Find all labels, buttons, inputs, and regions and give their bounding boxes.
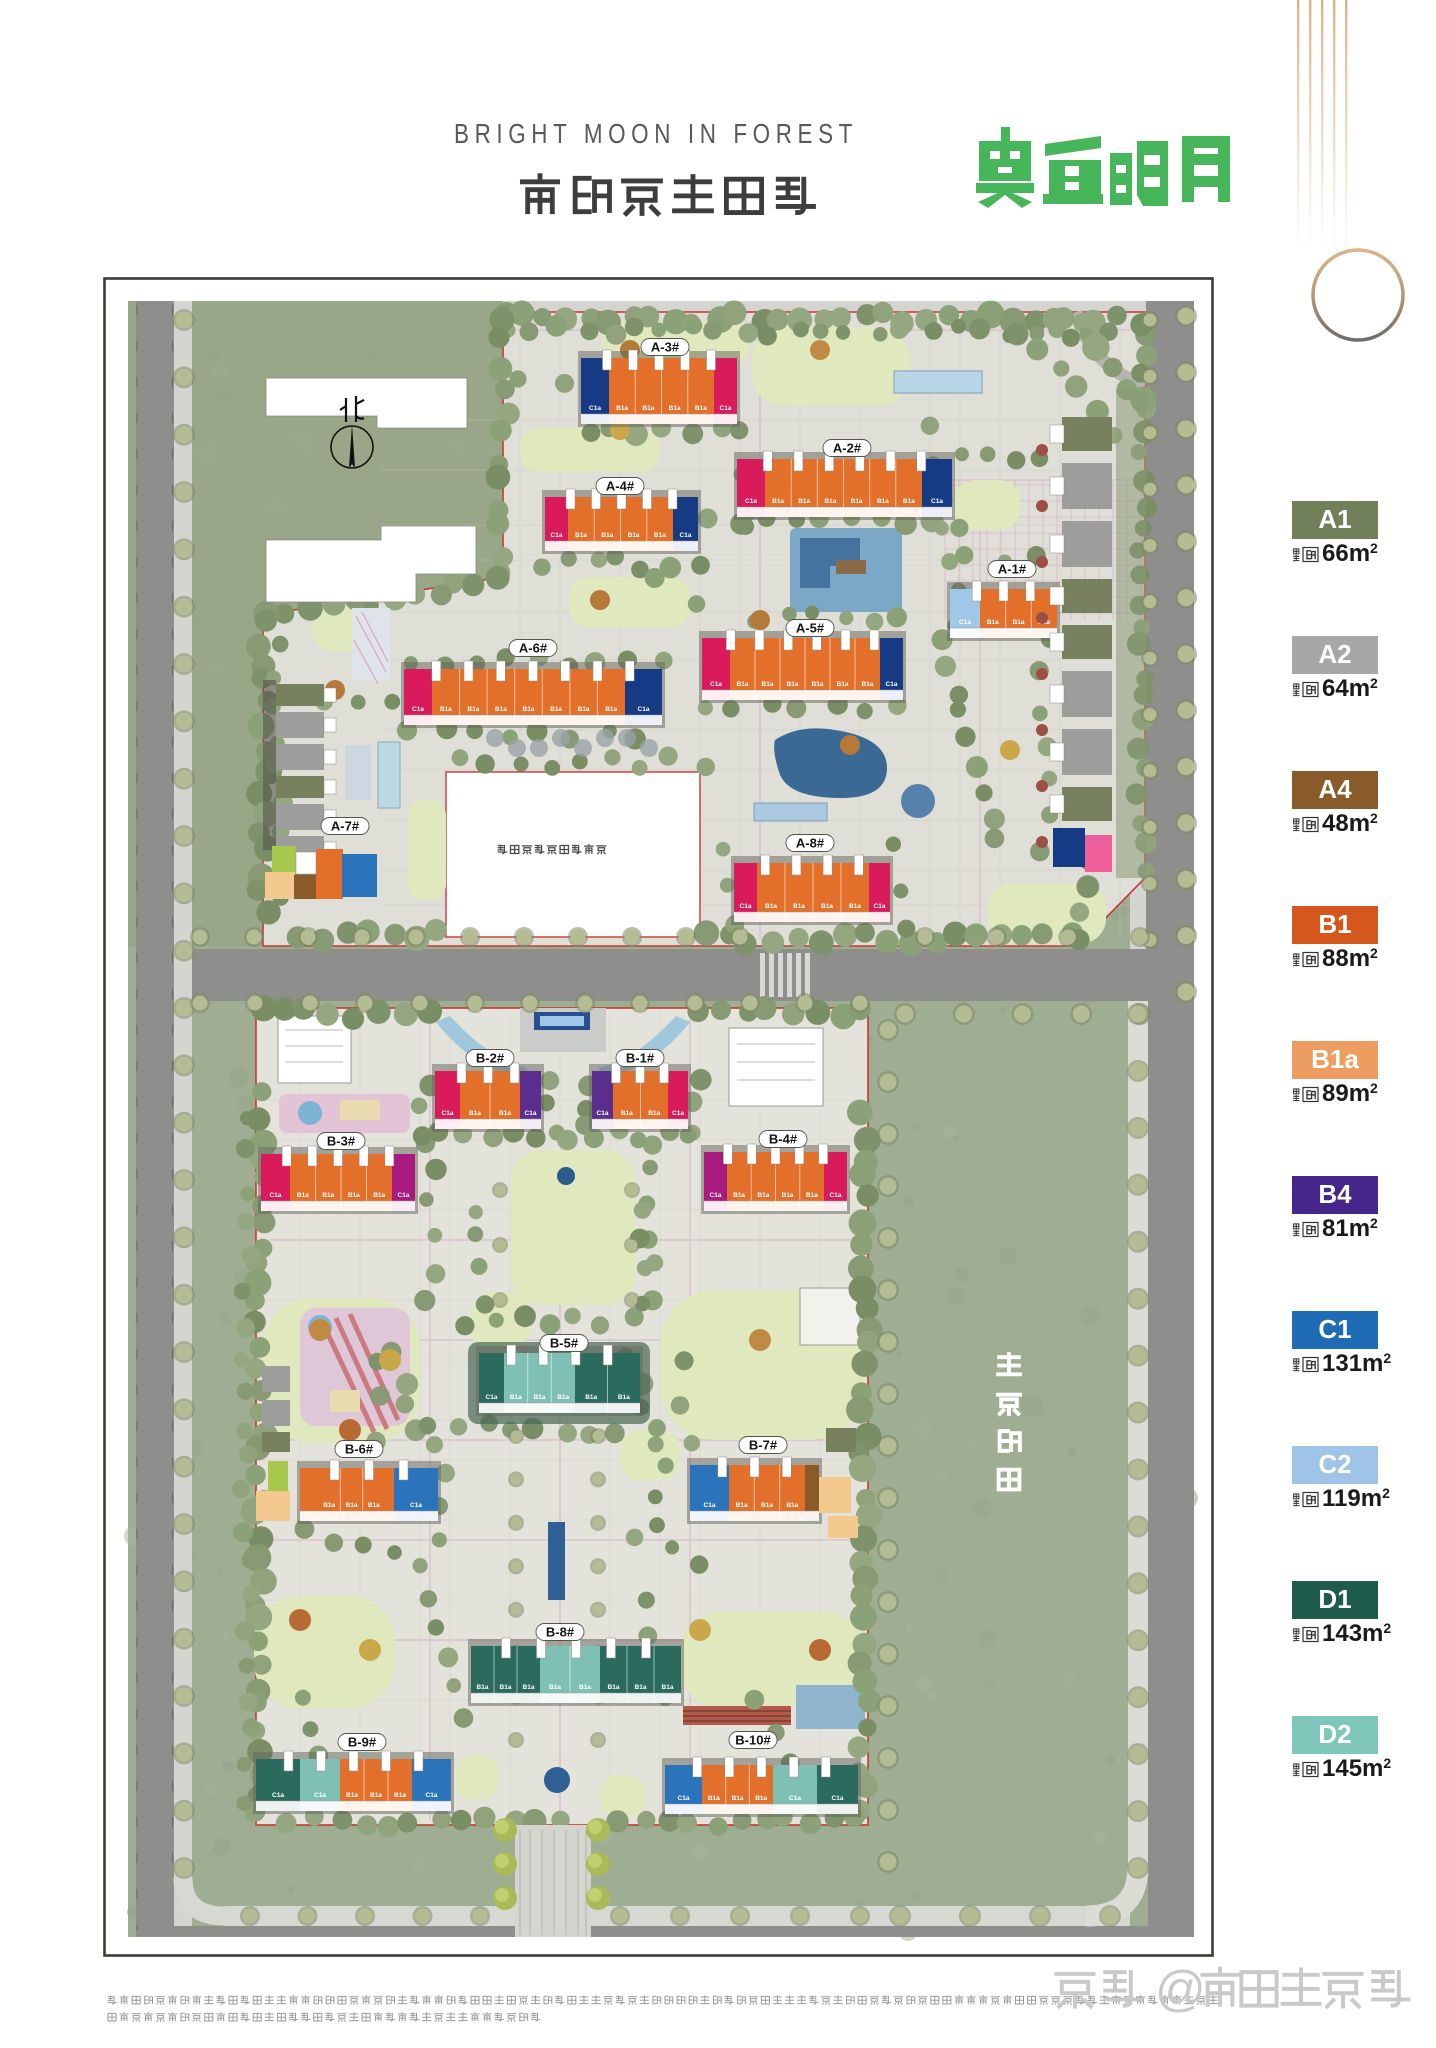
- svg-text:C1a: C1a: [678, 1795, 690, 1802]
- svg-text:B-1#: B-1#: [626, 1051, 655, 1066]
- svg-text:B1a: B1a: [669, 405, 681, 412]
- svg-text:B1a: B1a: [368, 1502, 380, 1509]
- svg-text:81m2: 81m2: [1322, 1215, 1378, 1242]
- svg-text:C1a: C1a: [551, 532, 563, 539]
- svg-text:B1a: B1a: [821, 903, 833, 910]
- svg-text:B1a: B1a: [585, 1394, 597, 1401]
- svg-text:C1a: C1a: [931, 498, 943, 505]
- svg-text:B1a: B1a: [762, 681, 774, 688]
- svg-text:B1a: B1a: [1311, 1044, 1359, 1074]
- svg-text:B1a: B1a: [549, 1684, 561, 1691]
- svg-text:B1a: B1a: [903, 498, 915, 505]
- svg-text:B1a: B1a: [578, 706, 590, 713]
- svg-text:B1a: B1a: [786, 1502, 798, 1509]
- svg-text:C1a: C1a: [886, 681, 898, 688]
- svg-text:B4: B4: [1318, 1179, 1352, 1209]
- svg-text:B1a: B1a: [695, 405, 707, 412]
- svg-text:A-1#: A-1#: [998, 562, 1027, 577]
- svg-text:B1a: B1a: [499, 1110, 511, 1117]
- svg-text:B-9#: B-9#: [348, 1735, 377, 1750]
- svg-text:A-4#: A-4#: [606, 479, 635, 494]
- svg-text:B1a: B1a: [757, 1192, 769, 1199]
- svg-text:B1a: B1a: [635, 1684, 647, 1691]
- svg-text:131m2: 131m2: [1322, 1350, 1391, 1377]
- svg-text:B1a: B1a: [628, 532, 640, 539]
- svg-text:B1a: B1a: [348, 1192, 360, 1199]
- svg-text:B1a: B1a: [782, 1192, 794, 1199]
- svg-text:C1a: C1a: [832, 1795, 844, 1802]
- svg-text:B1a: B1a: [798, 498, 810, 505]
- svg-text:C1a: C1a: [704, 1502, 716, 1509]
- svg-text:88m2: 88m2: [1322, 945, 1378, 972]
- svg-text:B1a: B1a: [523, 706, 535, 713]
- svg-text:B1a: B1a: [708, 1795, 720, 1802]
- svg-text:B1a: B1a: [440, 706, 452, 713]
- svg-text:C2: C2: [1318, 1449, 1351, 1479]
- svg-text:A4: A4: [1318, 774, 1352, 804]
- svg-text:B1a: B1a: [495, 706, 507, 713]
- svg-text:B1a: B1a: [787, 681, 799, 688]
- svg-text:C1: C1: [1318, 1314, 1351, 1344]
- svg-text:B1a: B1a: [616, 405, 628, 412]
- svg-text:C1a: C1a: [410, 1502, 422, 1509]
- svg-text:119m2: 119m2: [1322, 1485, 1390, 1512]
- svg-text:B1a: B1a: [851, 498, 863, 505]
- svg-text:B1a: B1a: [837, 681, 849, 688]
- svg-text:A-8#: A-8#: [796, 836, 825, 851]
- svg-text:C1a: C1a: [720, 405, 732, 412]
- svg-text:B1a: B1a: [812, 681, 824, 688]
- svg-text:A-7#: A-7#: [331, 819, 360, 834]
- svg-text:B1a: B1a: [557, 1394, 569, 1401]
- svg-text:A1: A1: [1318, 504, 1351, 534]
- svg-text:B-2#: B-2#: [476, 1051, 505, 1066]
- svg-text:B1a: B1a: [732, 1795, 744, 1802]
- svg-text:B1a: B1a: [806, 1192, 818, 1199]
- svg-text:B1a: B1a: [736, 1502, 748, 1509]
- svg-text:B1a: B1a: [618, 1394, 630, 1401]
- svg-text:B1a: B1a: [534, 1394, 546, 1401]
- svg-text:B1a: B1a: [500, 1684, 512, 1691]
- svg-text:B1a: B1a: [765, 903, 777, 910]
- svg-text:B1a: B1a: [346, 1792, 358, 1799]
- svg-text:A-2#: A-2#: [833, 441, 862, 456]
- svg-text:B1a: B1a: [373, 1192, 385, 1199]
- svg-text:B1a: B1a: [755, 1795, 767, 1802]
- svg-text:C1a: C1a: [412, 706, 424, 713]
- svg-text:C1a: C1a: [398, 1192, 410, 1199]
- svg-text:B1a: B1a: [370, 1792, 382, 1799]
- svg-text:B1a: B1a: [322, 1192, 334, 1199]
- svg-text:C1a: C1a: [789, 1795, 801, 1802]
- svg-text:B1a: B1a: [737, 681, 749, 688]
- svg-text:C1a: C1a: [525, 1110, 537, 1117]
- svg-text:48m2: 48m2: [1322, 810, 1378, 837]
- svg-text:D2: D2: [1318, 1719, 1351, 1749]
- svg-text:A-6#: A-6#: [519, 641, 548, 656]
- svg-text:B-3#: B-3#: [327, 1134, 356, 1149]
- svg-text:BRIGHT MOON IN FOREST: BRIGHT MOON IN FOREST: [454, 118, 858, 149]
- svg-text:B1a: B1a: [648, 1110, 660, 1117]
- svg-text:C1a: C1a: [314, 1792, 326, 1799]
- svg-text:A-5#: A-5#: [796, 621, 825, 636]
- svg-text:B-5#: B-5#: [550, 1336, 579, 1351]
- svg-text:C1a: C1a: [589, 405, 601, 412]
- svg-text:B1a: B1a: [662, 1684, 674, 1691]
- svg-text:B1a: B1a: [772, 498, 784, 505]
- svg-text:C1a: C1a: [597, 1110, 609, 1117]
- svg-text:B-6#: B-6#: [345, 1442, 374, 1457]
- svg-text:C1a: C1a: [740, 903, 752, 910]
- svg-text:B1a: B1a: [761, 1502, 773, 1509]
- svg-text:C1a: C1a: [874, 903, 886, 910]
- svg-text:B-7#: B-7#: [749, 1438, 778, 1453]
- svg-text:C1a: C1a: [710, 1192, 722, 1199]
- svg-text:B1a: B1a: [575, 532, 587, 539]
- svg-text:B1a: B1a: [477, 1684, 489, 1691]
- svg-text:C1a: C1a: [680, 532, 692, 539]
- svg-text:B1a: B1a: [621, 1110, 633, 1117]
- svg-text:C1a: C1a: [710, 681, 722, 688]
- svg-text:B1a: B1a: [469, 1110, 481, 1117]
- svg-text:C1a: C1a: [442, 1110, 454, 1117]
- svg-text:143m2: 143m2: [1322, 1620, 1391, 1647]
- svg-text:C1a: C1a: [830, 1192, 842, 1199]
- svg-text:145m2: 145m2: [1322, 1755, 1391, 1782]
- svg-text:B1a: B1a: [824, 498, 836, 505]
- svg-text:C1a: C1a: [672, 1110, 684, 1117]
- svg-text:64m2: 64m2: [1322, 675, 1378, 702]
- svg-text:B1a: B1a: [346, 1502, 358, 1509]
- svg-text:B1a: B1a: [394, 1792, 406, 1799]
- svg-text:B1a: B1a: [510, 1394, 522, 1401]
- svg-text:C1a: C1a: [426, 1792, 438, 1799]
- svg-text:B1a: B1a: [733, 1192, 745, 1199]
- svg-text:B1a: B1a: [608, 1684, 620, 1691]
- svg-text:B-10#: B-10#: [735, 1733, 771, 1748]
- svg-text:B1a: B1a: [654, 532, 666, 539]
- svg-text:C1a: C1a: [959, 619, 971, 626]
- svg-text:B1a: B1a: [877, 498, 889, 505]
- svg-text:B1a: B1a: [793, 903, 805, 910]
- svg-text:B1a: B1a: [323, 1502, 335, 1509]
- svg-text:B1a: B1a: [642, 405, 654, 412]
- svg-text:B-8#: B-8#: [546, 1625, 575, 1640]
- svg-text:B1a: B1a: [297, 1192, 309, 1199]
- svg-text:B1a: B1a: [849, 903, 861, 910]
- svg-text:B-4#: B-4#: [769, 1132, 798, 1147]
- svg-text:89m2: 89m2: [1322, 1080, 1378, 1107]
- svg-text:C1a: C1a: [745, 498, 757, 505]
- svg-text:A2: A2: [1318, 639, 1351, 669]
- svg-text:B1a: B1a: [862, 681, 874, 688]
- svg-text:A-3#: A-3#: [651, 340, 680, 355]
- svg-text:D1: D1: [1318, 1584, 1351, 1614]
- svg-text:C1a: C1a: [638, 706, 650, 713]
- svg-text:B1a: B1a: [579, 1684, 591, 1691]
- svg-text:B1a: B1a: [1013, 619, 1025, 626]
- svg-text:C1a: C1a: [272, 1792, 284, 1799]
- svg-text:@: @: [1155, 1961, 1206, 2017]
- svg-text:B1a: B1a: [605, 706, 617, 713]
- svg-text:C1a: C1a: [270, 1192, 282, 1199]
- svg-text:B1a: B1a: [987, 619, 999, 626]
- svg-text:C1a: C1a: [486, 1394, 498, 1401]
- svg-text:B1a: B1a: [550, 706, 562, 713]
- svg-text:B1a: B1a: [467, 706, 479, 713]
- svg-text:66m2: 66m2: [1322, 540, 1378, 567]
- svg-text:B1a: B1a: [601, 532, 613, 539]
- svg-text:B1a: B1a: [523, 1684, 535, 1691]
- svg-text:B1: B1: [1318, 909, 1351, 939]
